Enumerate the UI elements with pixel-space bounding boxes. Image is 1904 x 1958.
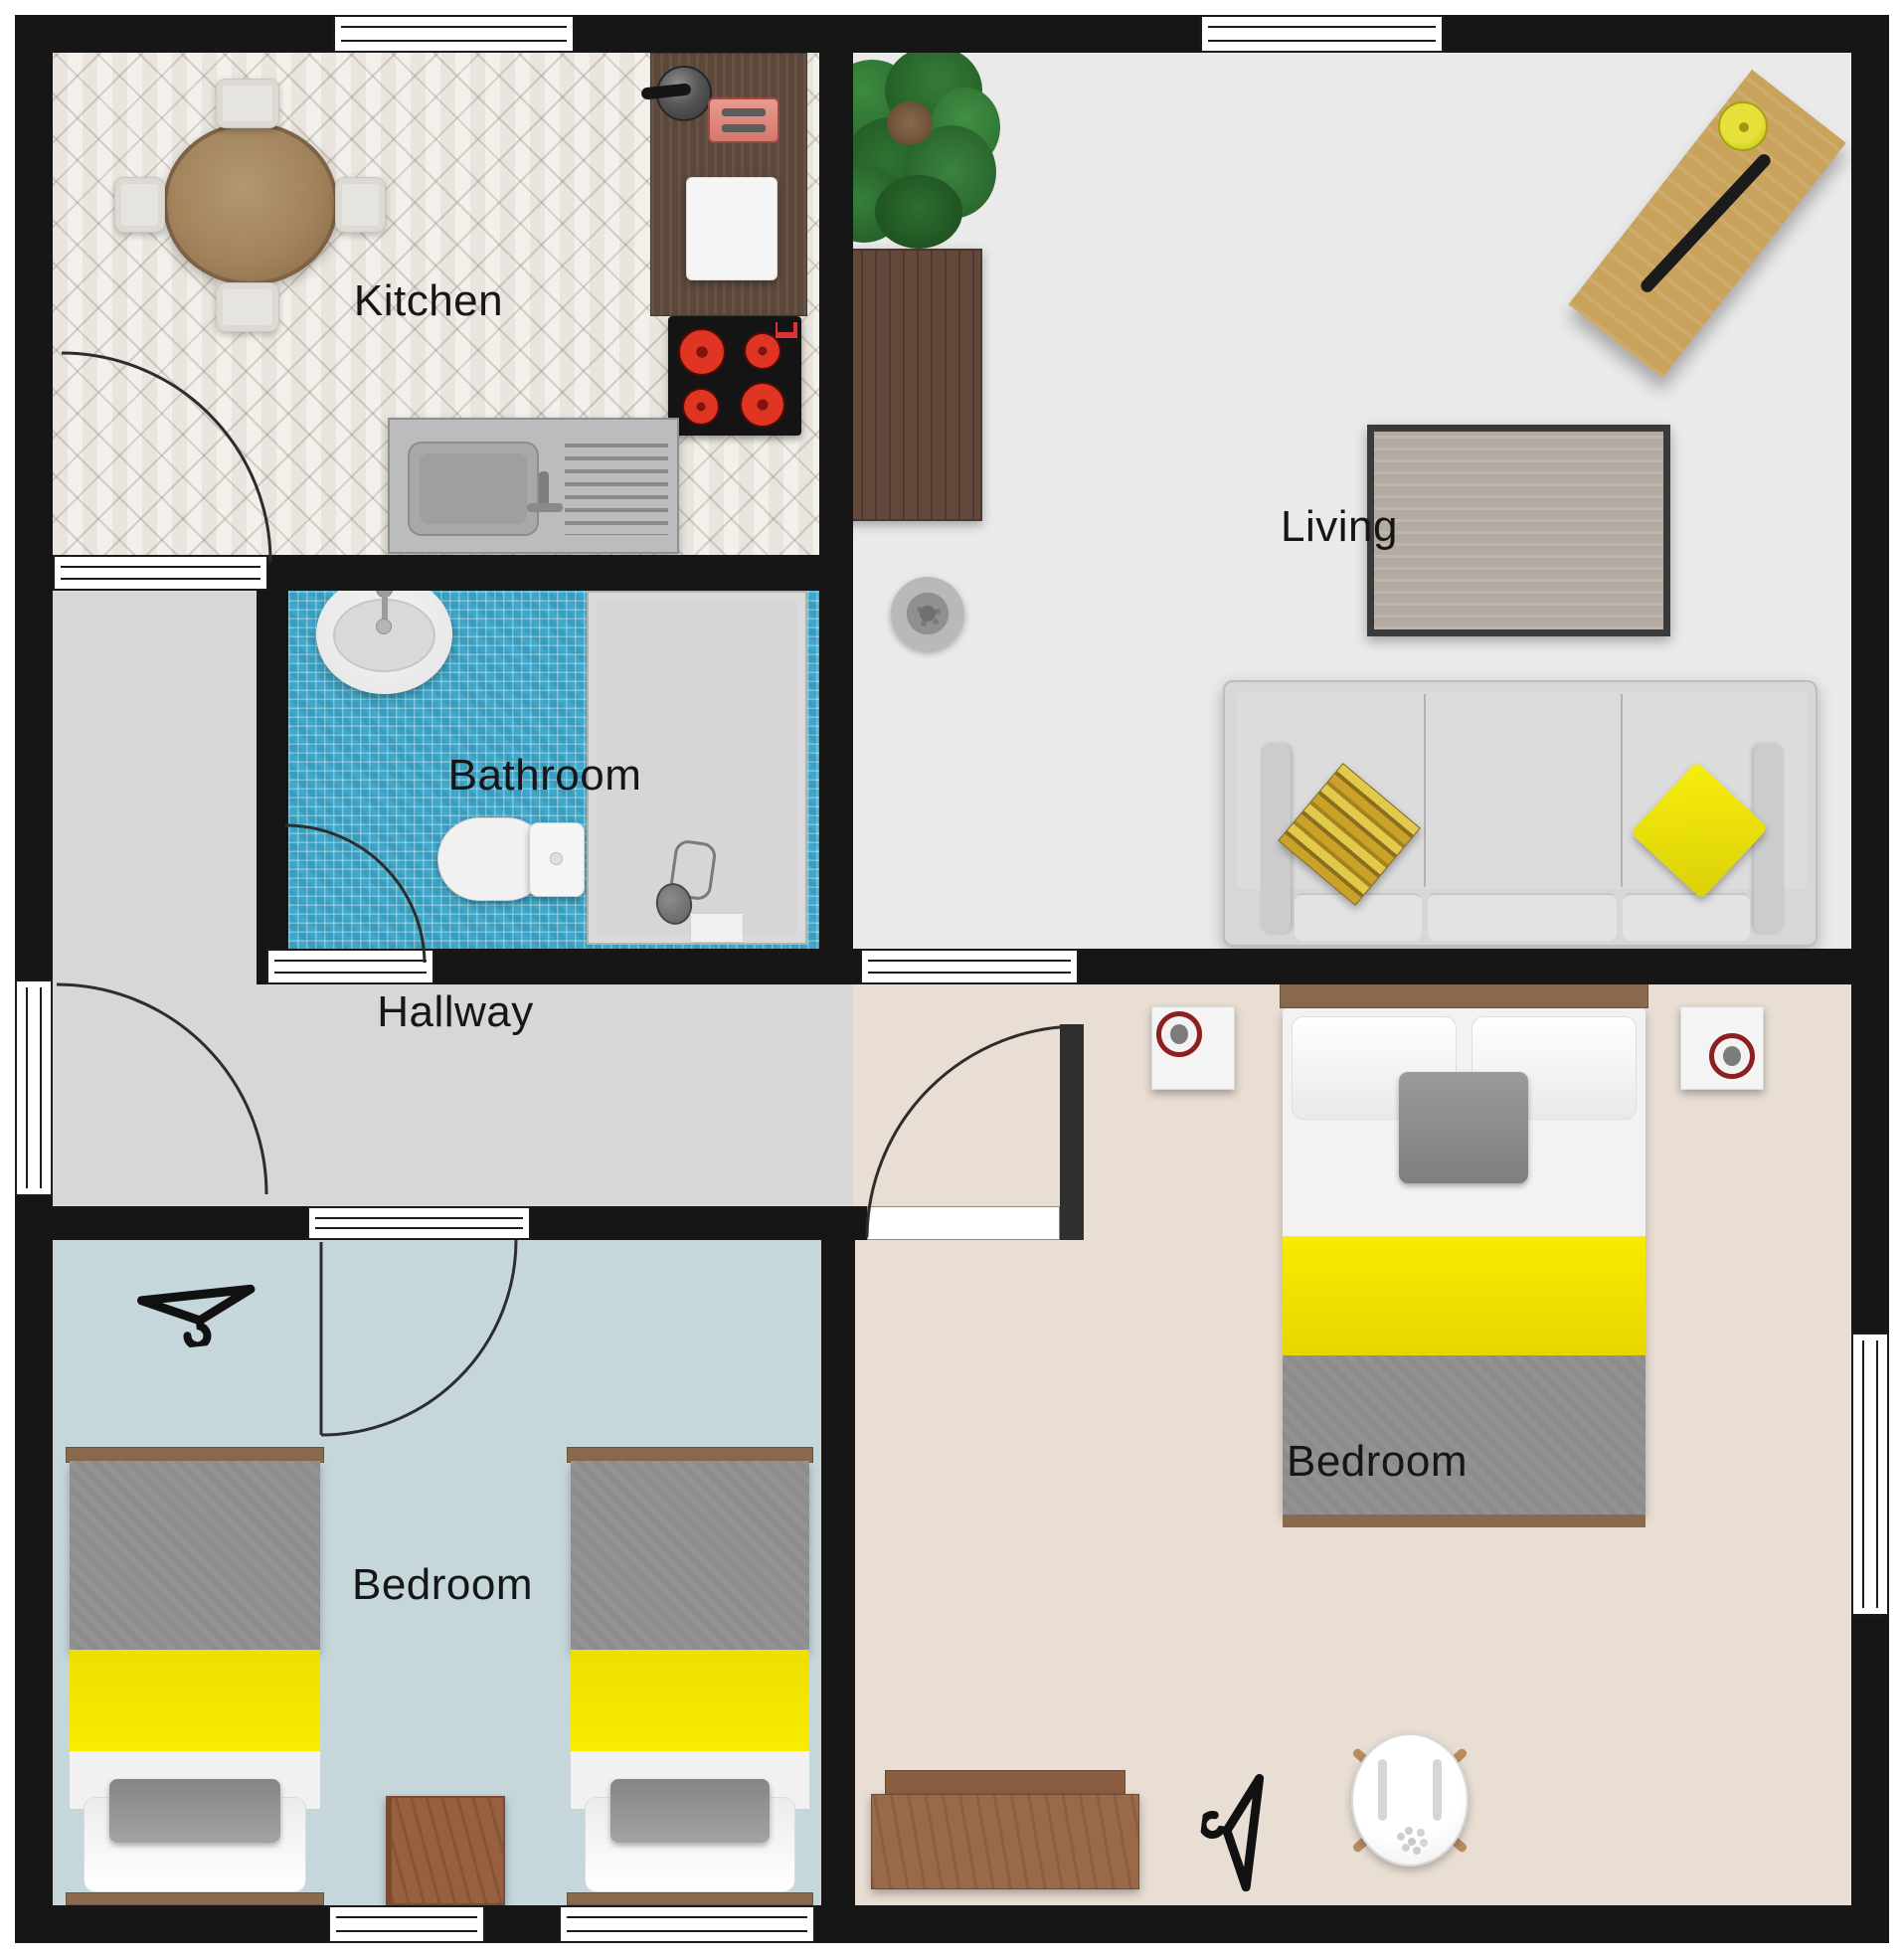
clothes-hanger-icon[interactable] xyxy=(130,1270,266,1352)
window-kitchen-top[interactable] xyxy=(333,15,575,53)
floor-plan: Kitchen Living Bathroom Hallway Bedroom … xyxy=(0,0,1904,1958)
burner-icon xyxy=(678,328,726,376)
drainer-lines-icon xyxy=(565,444,668,535)
cutting-board[interactable] xyxy=(686,177,778,280)
sofa-seam xyxy=(1621,694,1623,887)
cooktop[interactable] xyxy=(668,316,801,436)
window-living-top[interactable] xyxy=(1200,15,1444,53)
interior-window-living-bedroom[interactable] xyxy=(860,949,1079,984)
plant-core-icon xyxy=(887,101,933,145)
sink-basin xyxy=(408,442,539,536)
kitchen-sink-unit[interactable] xyxy=(388,418,679,554)
bed-yellow-runner xyxy=(70,1650,320,1751)
wall-outer-right xyxy=(1851,15,1889,1943)
room-label-bedroom-right: Bedroom xyxy=(1287,1437,1468,1487)
faucet-spout-icon xyxy=(376,619,392,634)
room-label-bathroom: Bathroom xyxy=(448,751,642,801)
sofa-seat-cushion xyxy=(1623,893,1750,941)
wall-outer-bottom xyxy=(15,1905,1889,1943)
bed-headboard xyxy=(1280,982,1648,1008)
bathroom-door-opening[interactable] xyxy=(266,949,434,984)
bedroom-right-door-leaf[interactable] xyxy=(1060,1024,1084,1240)
dining-chair-west[interactable] xyxy=(114,177,165,233)
room-label-hallway: Hallway xyxy=(377,987,534,1037)
burner-icon xyxy=(740,382,785,428)
leaf-icon xyxy=(875,175,962,249)
wall-hallway-bedroom-left xyxy=(53,1206,307,1240)
toaster[interactable] xyxy=(708,97,779,143)
dining-chair-south[interactable] xyxy=(216,282,279,332)
burner-icon xyxy=(682,388,720,426)
front-door-opening[interactable] xyxy=(15,979,53,1196)
three-seat-sofa[interactable] xyxy=(1223,680,1817,947)
room-label-kitchen: Kitchen xyxy=(354,276,503,326)
chair-slot-icon xyxy=(1378,1759,1387,1821)
bed-footboard xyxy=(1283,1514,1645,1527)
coffee-table[interactable] xyxy=(1367,425,1670,636)
alarm-clock-icon xyxy=(1709,1033,1755,1079)
bed-gray-blanket xyxy=(1283,1355,1645,1514)
wall-hallway-bedroom-left xyxy=(531,1206,867,1240)
faucet-stem-icon xyxy=(382,595,388,621)
dining-chair-east[interactable] xyxy=(335,177,386,233)
bed-accent-pillow xyxy=(610,1779,770,1843)
window-bedroom-left-bottom-2[interactable] xyxy=(559,1905,815,1943)
chair-slot-icon xyxy=(1433,1759,1442,1821)
wall-between-bedrooms xyxy=(821,1240,855,1905)
speaker-grill-icon xyxy=(920,606,936,622)
chair-engraving-icon xyxy=(1405,1827,1413,1835)
sofa-seam xyxy=(1424,694,1426,887)
bed-yellow-runner xyxy=(1283,1236,1645,1355)
shower-tray xyxy=(690,913,744,943)
bedroom-right-door-opening[interactable] xyxy=(867,1206,1060,1240)
faucet-bar-icon xyxy=(527,503,563,512)
bed-gray-blanket xyxy=(571,1461,809,1652)
nightstand-right[interactable] xyxy=(1680,1006,1764,1090)
single-bed-left[interactable] xyxy=(66,1447,324,1905)
wood-nightstand[interactable] xyxy=(386,1796,505,1905)
bedroom-left-door-opening[interactable] xyxy=(307,1206,531,1240)
wall-hallway-bathroom xyxy=(257,591,288,984)
burner-icon xyxy=(744,332,781,370)
wall-kitchen-bathroom xyxy=(257,555,819,591)
egg-chair[interactable] xyxy=(1340,1730,1479,1869)
dining-table[interactable] xyxy=(163,122,338,285)
bed-headboard xyxy=(66,1892,324,1905)
room-label-living: Living xyxy=(1281,502,1398,552)
window-bedroom-left-bottom-1[interactable] xyxy=(328,1905,485,1943)
bed-accent-pillow xyxy=(109,1779,280,1843)
sofa-seat-cushion xyxy=(1428,893,1617,941)
bench-seat xyxy=(871,1794,1139,1889)
bed-gray-blanket xyxy=(70,1461,320,1652)
wall-kitchen-living xyxy=(819,53,853,984)
dining-chair-north[interactable] xyxy=(216,79,279,128)
wood-bench[interactable] xyxy=(871,1770,1139,1889)
wall-outer-top xyxy=(15,15,1889,53)
window-bedroom-right[interactable] xyxy=(1851,1333,1889,1616)
nightstand-left[interactable] xyxy=(1151,1006,1235,1090)
bed-yellow-runner xyxy=(571,1650,809,1751)
cooktop-controls-icon xyxy=(778,322,793,332)
bed-accent-pillow xyxy=(1399,1072,1528,1183)
bed-headboard xyxy=(567,1892,813,1905)
single-bed-right[interactable] xyxy=(567,1447,813,1905)
chair-seat xyxy=(1351,1733,1469,1867)
bathroom-basin[interactable] xyxy=(316,575,452,694)
alarm-clock-icon xyxy=(1156,1011,1202,1057)
toilet-flush-button-icon xyxy=(550,852,563,865)
yellow-bowl[interactable] xyxy=(1718,101,1768,151)
plant-cabinet[interactable] xyxy=(831,249,982,521)
round-speaker[interactable] xyxy=(891,577,964,650)
kitchen-door-opening[interactable] xyxy=(53,555,268,591)
room-label-bedroom-left: Bedroom xyxy=(352,1560,533,1610)
